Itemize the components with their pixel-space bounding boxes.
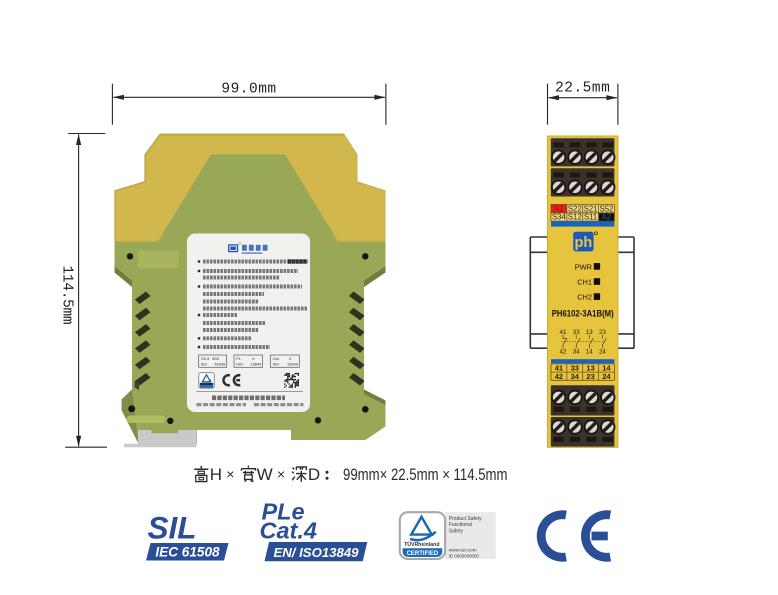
svg-text:S12: S12 bbox=[568, 213, 582, 222]
svg-text:×: × bbox=[277, 466, 285, 482]
svg-text:34: 34 bbox=[573, 348, 580, 355]
svg-text:S34: S34 bbox=[552, 213, 567, 222]
svg-text:Product Safety: Product Safety bbox=[449, 516, 482, 522]
svg-text:24: 24 bbox=[599, 348, 606, 355]
svg-text:S11: S11 bbox=[584, 213, 597, 222]
svg-text:ID 0600000000: ID 0600000000 bbox=[449, 553, 480, 558]
svg-text:×: × bbox=[226, 466, 234, 482]
svg-text:34: 34 bbox=[571, 372, 580, 381]
svg-text:22.5mm: 22.5mm bbox=[555, 81, 610, 97]
svg-text:Functional: Functional bbox=[449, 522, 472, 528]
svg-text:13: 13 bbox=[586, 329, 593, 336]
svg-text:41: 41 bbox=[560, 329, 567, 336]
svg-text:14: 14 bbox=[586, 348, 593, 355]
svg-text:A2: A2 bbox=[602, 213, 612, 222]
svg-text:CERTIFIED: CERTIFIED bbox=[407, 551, 439, 557]
svg-text:24: 24 bbox=[602, 372, 611, 381]
svg-text:H: H bbox=[210, 465, 222, 484]
svg-text:PL: PL bbox=[236, 356, 242, 361]
svg-text:42: 42 bbox=[560, 348, 567, 355]
svg-text:23: 23 bbox=[586, 372, 594, 381]
svg-text:ph: ph bbox=[575, 235, 593, 251]
svg-text:603: 603 bbox=[212, 356, 219, 361]
svg-text:Cat.4: Cat.4 bbox=[260, 517, 317, 543]
svg-text:42: 42 bbox=[555, 372, 563, 381]
svg-text:PWR: PWR bbox=[575, 262, 592, 271]
svg-text:61508: 61508 bbox=[214, 361, 225, 366]
svg-text:CH2: CH2 bbox=[577, 293, 592, 302]
svg-text:e: e bbox=[252, 356, 254, 361]
svg-text:23: 23 bbox=[599, 329, 606, 336]
svg-text:IEC 61508: IEC 61508 bbox=[155, 545, 220, 560]
svg-text:99mm× 22.5mm × 114.5mm: 99mm× 22.5mm × 114.5mm bbox=[343, 466, 508, 484]
svg-text:SIL3: SIL3 bbox=[201, 356, 209, 361]
svg-text:TÜVRheinland: TÜVRheinland bbox=[404, 541, 439, 548]
svg-text:EN/ ISO13849: EN/ ISO13849 bbox=[273, 545, 359, 560]
svg-text:IEC: IEC bbox=[201, 361, 208, 366]
svg-text:D: D bbox=[308, 465, 320, 484]
svg-text:W: W bbox=[257, 465, 273, 484]
svg-text:13849: 13849 bbox=[287, 361, 298, 366]
svg-text:SIL: SIL bbox=[148, 510, 197, 546]
svg-text:13849: 13849 bbox=[250, 361, 261, 366]
svg-text:CH1: CH1 bbox=[577, 277, 592, 286]
svg-text:33: 33 bbox=[573, 329, 580, 336]
svg-text:PH6102-3A1B(M): PH6102-3A1B(M) bbox=[552, 309, 614, 319]
svg-text:ISO: ISO bbox=[273, 361, 280, 366]
svg-text:ISO: ISO bbox=[236, 361, 243, 366]
svg-text:Safety: Safety bbox=[449, 529, 464, 535]
svg-text:Cat.: Cat. bbox=[273, 356, 280, 361]
svg-text:99.0mm: 99.0mm bbox=[221, 82, 276, 98]
svg-text:114.5mm: 114.5mm bbox=[58, 266, 74, 325]
